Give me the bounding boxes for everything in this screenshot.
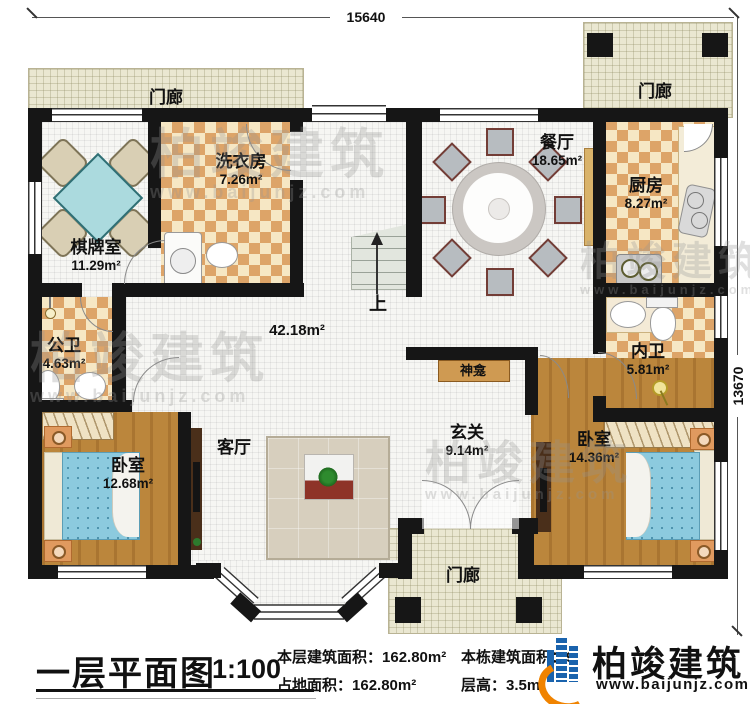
dining-chair [486, 128, 514, 156]
porch-column [702, 33, 728, 57]
wall [593, 122, 606, 297]
porch-column [587, 33, 613, 57]
plan-scale: 1:100 [212, 654, 281, 685]
kitchen-sink-bowl [691, 212, 708, 229]
stairs-direction-line [376, 244, 378, 294]
wall [112, 297, 126, 400]
dining-chair [418, 196, 446, 224]
right-dimension-text: 13670 [730, 355, 746, 417]
land-area-label: 占地面积： [277, 677, 352, 694]
floor-area-label: 本层建筑面积： [277, 649, 382, 666]
bathroom-sink [610, 301, 646, 328]
nightstand [44, 540, 72, 562]
wall [178, 412, 191, 565]
plan-title: 一层平面图 [36, 646, 216, 695]
window [58, 565, 146, 579]
wall [290, 180, 303, 297]
floor-area-value: 162.80m² [382, 649, 446, 666]
room-label-foyer: 玄关 9.14m² [446, 423, 489, 458]
dining-chair [554, 196, 582, 224]
plant [317, 466, 339, 488]
stove-burner [639, 262, 658, 281]
tv [540, 468, 547, 512]
title-underline [36, 689, 314, 692]
floor-height-label: 层高： [461, 677, 506, 694]
room-label-bedroom-left: 卧室 12.68m² [103, 456, 153, 491]
bathroom-sink [74, 372, 106, 400]
hall-area-label: 42.18m² [269, 322, 325, 339]
nightstand [44, 426, 72, 448]
window [584, 565, 672, 579]
wall [112, 283, 304, 297]
toilet [650, 307, 676, 341]
laundry-sink [206, 242, 238, 268]
wall [28, 283, 82, 297]
pendant-light-bulb [45, 308, 56, 319]
logo: 柏竣建筑 www.baijunjz.com [538, 632, 738, 702]
wall [525, 347, 538, 415]
right-dimension-line [737, 17, 738, 635]
window [714, 462, 728, 550]
room-label-qipai: 棋牌室 11.29m² [71, 238, 122, 273]
logo-building-icon [538, 634, 590, 698]
porch-top-right-label: 门廊 [638, 82, 672, 102]
wall [593, 283, 728, 297]
logo-swoosh [533, 656, 600, 704]
wall [593, 408, 728, 422]
kitchen-sink-bowl [687, 192, 704, 209]
bay-window [196, 558, 404, 636]
plant-small [193, 538, 201, 546]
wall [406, 347, 538, 360]
land-area-value: 162.80m² [352, 677, 416, 694]
room-label-living: 客厅 [217, 438, 251, 458]
room-label-bedroom-right: 卧室 14.36m² [569, 430, 619, 465]
floor-area-line: 本层建筑面积：162.80m² [277, 646, 446, 667]
floorplan-page: 15640 13670 门廊 门廊 门廊 [0, 0, 750, 704]
dining-table-center [488, 198, 510, 220]
wall [398, 518, 424, 534]
wall [28, 108, 42, 579]
floor-height-value: 3.5m [506, 677, 540, 694]
shrine-label: 神龛 [460, 362, 486, 380]
wall [593, 297, 606, 354]
window [28, 182, 42, 254]
stairs-arrow-head [371, 232, 383, 245]
wall [148, 122, 161, 248]
logo-url-text: www.baijunjz.com [596, 676, 749, 693]
land-area-line: 占地面积：162.80m² [277, 674, 416, 695]
room-label-kitchen: 厨房 8.27m² [625, 176, 668, 211]
window [52, 108, 142, 122]
nightstand [690, 428, 716, 450]
bed-sheet-fold [626, 453, 651, 537]
room-label-inner-bath: 内卫 5.81m² [627, 342, 670, 377]
wall [406, 122, 422, 297]
washing-machine-drum [170, 248, 196, 274]
window [714, 296, 728, 338]
tv [193, 462, 200, 512]
wall [520, 534, 534, 579]
stairs-up-label: 上 [369, 294, 387, 315]
porch-bottom-label: 门廊 [446, 566, 480, 586]
dining-chair [486, 268, 514, 296]
title-underline-light [36, 698, 316, 699]
wall [290, 122, 303, 132]
wall [112, 400, 132, 412]
room-label-laundry: 洗衣房 7.26m² [216, 152, 267, 187]
floor-height-line: 层高：3.5m [461, 674, 540, 695]
room-label-public-bath: 公卫 4.63m² [43, 336, 86, 371]
nightstand [690, 540, 716, 562]
stove-burner [621, 259, 640, 278]
porch-top-left-label: 门廊 [149, 88, 183, 108]
window [440, 108, 538, 122]
room-label-dining: 餐厅 18.65m² [532, 133, 582, 168]
top-dimension-text: 15640 [330, 9, 402, 25]
porch-column [516, 597, 542, 623]
window [714, 158, 728, 246]
window [312, 105, 386, 122]
